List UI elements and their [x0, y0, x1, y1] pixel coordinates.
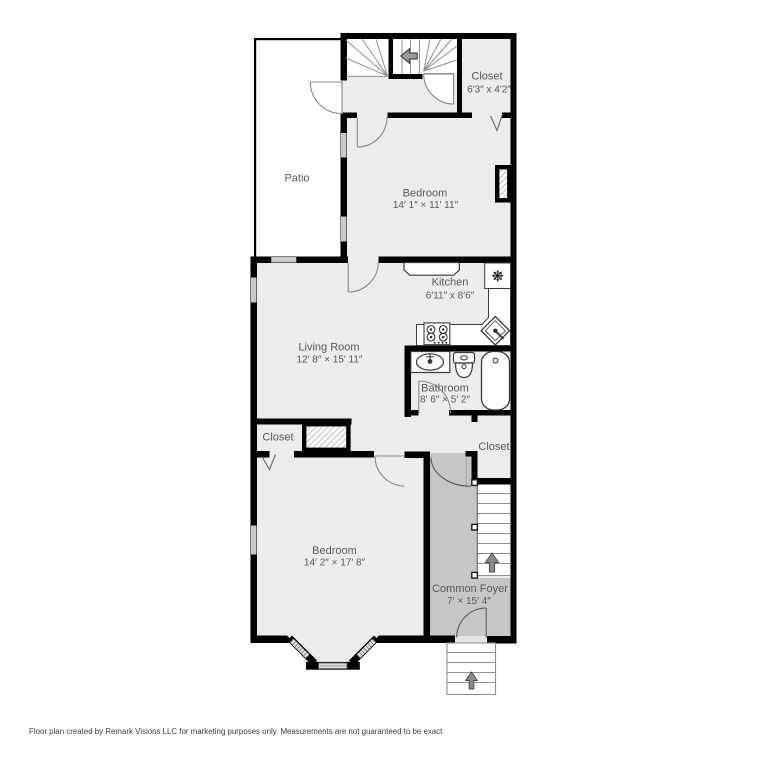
- svg-text:7′ × 15′ 4″: 7′ × 15′ 4″: [447, 596, 491, 607]
- svg-text:14′ 1″ × 11′ 11″: 14′ 1″ × 11′ 11″: [393, 200, 459, 211]
- svg-text:14′ 2″ × 17′ 8″: 14′ 2″ × 17′ 8″: [304, 558, 366, 569]
- svg-text:Living Room: Living Room: [298, 342, 359, 354]
- svg-text:6′3″ x 4′2″: 6′3″ x 4′2″: [467, 85, 511, 96]
- svg-text:12′ 8″ × 15′ 11″: 12′ 8″ × 15′ 11″: [297, 355, 363, 366]
- svg-text:Kitchen: Kitchen: [432, 277, 469, 289]
- svg-text:Bedroom: Bedroom: [403, 188, 448, 200]
- svg-text:Common Foyer: Common Foyer: [432, 583, 508, 595]
- svg-text:Closet: Closet: [478, 441, 509, 453]
- svg-text:Closet: Closet: [262, 432, 293, 444]
- svg-text:Patio: Patio: [284, 173, 309, 185]
- svg-text:Bathroom: Bathroom: [421, 383, 469, 395]
- svg-text:6′11″ x 8′6″: 6′11″ x 8′6″: [426, 291, 475, 302]
- svg-text:Bedroom: Bedroom: [312, 545, 357, 557]
- svg-text:Closet: Closet: [471, 71, 502, 83]
- svg-text:8′ 6″ × 5′ 2″: 8′ 6″ × 5′ 2″: [420, 395, 470, 406]
- svg-text:Floor plan created by Remark V: Floor plan created by Remark Visions LLC…: [29, 727, 443, 736]
